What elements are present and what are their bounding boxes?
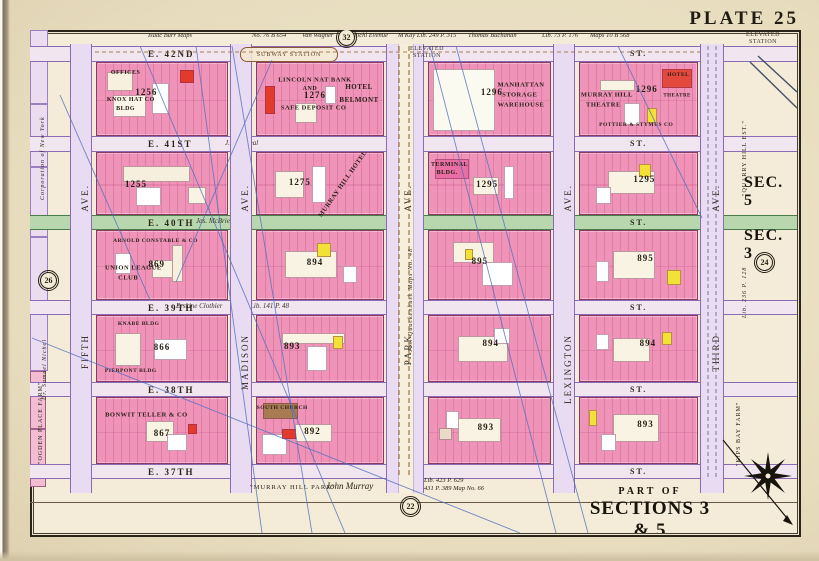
part-of-label: PART OF — [585, 486, 715, 497]
lot-patch — [662, 332, 672, 346]
sections-title: SECTIONS 3 & 5 — [585, 498, 715, 533]
building-label: KNOX HAT CO — [107, 97, 155, 103]
reference-circle-26: 26 — [40, 272, 57, 289]
deed-annotation: No. 76 B 654 — [252, 32, 286, 39]
reference-circle-32: 32 — [338, 30, 355, 46]
block-number: 1295 — [476, 179, 498, 189]
lot-patch — [504, 166, 514, 199]
building-label: BLDG — [116, 106, 135, 112]
reference-circle-22: 22 — [402, 498, 419, 515]
building-label: PIERPONT BLDG — [105, 368, 157, 374]
lot-patch — [188, 424, 197, 434]
atlas-page: PLATE 25 E. 42NDST.E. 41STST.E. 40THST.E… — [0, 0, 819, 561]
map-canvas: E. 42NDST.E. 41STST.E. 40THST.E. 39THST.… — [30, 30, 797, 533]
block-number: 1255 — [125, 179, 147, 189]
street-name-label: E. 42ND — [148, 49, 195, 59]
street-st-label: ST. — [630, 467, 647, 476]
park-avenue-annotation: Jas. Quackenbush Maps No. 48 — [408, 248, 414, 352]
map-block-1255: 1255 — [96, 152, 228, 215]
avenue-ave-label: AVE. — [711, 184, 721, 212]
building-label: UNION LEAGUE — [105, 265, 162, 272]
partial-lot-strip — [30, 237, 48, 304]
building-label: THEATRE — [586, 101, 621, 108]
map-block-866: 866KNABE BLDGPIERPONT BLDG — [96, 315, 228, 382]
map-block-1276: 1276LINCOLN NAT BANKANDSAFE DEPOSIT COHO… — [256, 62, 384, 136]
plate-title: PLATE 25 — [689, 8, 799, 30]
page-edge-shadow — [0, 0, 10, 561]
map-block-895: 895 — [579, 230, 698, 300]
lot-patch — [601, 434, 616, 450]
lot-patch — [136, 187, 161, 206]
left-margin-note: Corporation of New York — [40, 70, 46, 200]
street-st-label: ST. — [630, 385, 647, 394]
avenue-fifth: FIFTHAVE. — [70, 44, 92, 493]
building-label: SAFE DEPOSIT CO — [281, 104, 347, 111]
map-block-1296: 1296MANHATTANSTORAGEWAREHOUSE — [428, 62, 551, 136]
subway-station-bracket: SUBWAY STATION — [240, 47, 338, 62]
building-label: BONWIT TELLER & CO — [105, 411, 188, 418]
map-block-895: 895 — [428, 230, 551, 300]
lot-patch — [439, 428, 452, 440]
lot-patch — [325, 86, 336, 104]
block-number: 867 — [154, 428, 171, 438]
elevated-station-label: ELEVATED STATION — [406, 46, 448, 59]
avenue-park: PARKAVE. — [386, 44, 424, 493]
street-annotation: Lib. 141 P. 48 — [250, 302, 289, 310]
lot-patch — [433, 69, 496, 131]
block-number: 895 — [472, 256, 489, 266]
block-number: 893 — [478, 422, 495, 432]
right-margin-note: Lib. 236 P. 128 — [742, 254, 748, 318]
lot-lines — [97, 153, 227, 214]
map-block-894: 894 — [428, 315, 551, 382]
deed-reference-note: Lib. 423 P. 629431 P. 389 Map No. 66 — [424, 477, 484, 494]
building-label: HOTEL — [345, 83, 372, 91]
reference-circle-24: 24 — [756, 254, 773, 271]
map-block-894: 894 — [579, 315, 698, 382]
block-number: 1295 — [633, 174, 655, 184]
block-number: 1296 — [481, 87, 503, 97]
deed-annotation: Lib. 73 P. 176 — [542, 32, 578, 39]
map-block-893: 893 — [428, 397, 551, 464]
deed-annotation: Van Wagner — [302, 32, 333, 39]
lot-patch — [596, 334, 609, 350]
block-number: 1256 — [135, 87, 157, 97]
lot-patch — [172, 245, 183, 282]
block-number: 895 — [637, 253, 654, 263]
building-label: POTTIER & STYMUS CO — [599, 122, 673, 128]
avenue-ave-label: AVE. — [403, 184, 413, 212]
deed-line: Lib. 423 P. 629 — [424, 477, 484, 485]
lot-patch — [312, 166, 325, 202]
lot-patch — [647, 108, 657, 123]
building-label: LINCOLN NAT BANK — [278, 77, 352, 84]
building-label: ARNOLD CONSTABLE & CO — [113, 238, 198, 244]
map-block-867: 867BONWIT TELLER & CO — [96, 397, 228, 464]
map-block-892: 892SOUTH CHURCH — [256, 397, 384, 464]
lot-patch — [596, 261, 609, 282]
street-name-label: E. 38TH — [148, 385, 195, 395]
street-st-label: ST. — [630, 218, 647, 227]
map-block-893: 893 — [579, 397, 698, 464]
street-st-label: ST. — [630, 139, 647, 148]
building-label: MANHATTAN — [498, 81, 545, 88]
street-name-label: E. 41ST — [148, 139, 193, 149]
lot-patch — [282, 429, 295, 439]
avenue-ave-label: AVE. — [563, 184, 573, 212]
elevated-station-label: ELEVATED STATION — [742, 32, 784, 45]
street-name-label: E. 37TH — [148, 467, 195, 477]
owner-name-note: John Murray — [326, 481, 373, 491]
lot-patch — [446, 411, 459, 429]
lot-patch — [600, 80, 635, 91]
building-label: BELMONT — [339, 96, 378, 104]
avenue-lexington: LEXINGTONAVE. — [553, 44, 575, 493]
building-label: OFFICES — [111, 70, 141, 76]
deed-annotation: Michl Evenue — [352, 32, 388, 39]
block-number: 894 — [307, 257, 324, 267]
lot-patch — [115, 333, 140, 366]
block-number: 1296 — [636, 84, 658, 94]
lot-patch — [667, 270, 682, 284]
right-margin-note: "KIPS BAY FARM" — [736, 394, 742, 466]
murray-hill-park-note: "MURRAY HILL PARK" — [250, 484, 336, 491]
avenue-name-label: THIRD — [711, 334, 721, 372]
map-block-1256: 1256OFFICESKNOX HAT COBLDG — [96, 62, 228, 136]
building-label: CLUB — [118, 274, 138, 281]
lot-patch — [307, 346, 327, 371]
lot-patch — [596, 187, 611, 204]
map-block-1296: 1296MURRAY HILLTHEATREPOTTIER & STYMUS C… — [579, 62, 698, 136]
avenue-third: THIRDAVE. — [700, 44, 724, 493]
building-label: TERMINAL — [431, 162, 468, 168]
deed-annotation: Isaac Burr Maps — [148, 32, 192, 39]
building-label: MURRAY HILL — [581, 91, 633, 98]
avenue-name-label: FIFTH — [80, 334, 90, 369]
map-block-1295: 1295 — [579, 152, 698, 215]
deed-annotation: Thomas Buchanan — [468, 32, 517, 39]
lot-patch — [589, 410, 597, 426]
lot-patch — [180, 70, 194, 83]
block-number: 894 — [482, 338, 499, 348]
building-label: AND — [303, 86, 318, 92]
building-label: WAREHOUSE — [498, 101, 545, 108]
street-st-label: ST. — [630, 49, 647, 58]
building-label: HOTEL — [667, 72, 689, 78]
lot-patch — [265, 86, 276, 114]
lot-patch — [333, 336, 344, 350]
map-block-893: 893 — [256, 315, 384, 382]
block-number: 894 — [640, 338, 657, 348]
street-name-label: E. 40TH — [148, 218, 195, 228]
section-5-label: SEC. 5 — [744, 174, 797, 210]
deed-line: 431 P. 389 Map No. 66 — [424, 485, 484, 493]
block-number: 892 — [304, 426, 321, 436]
avenue-name-label: LEXINGTON — [563, 334, 573, 404]
lot-patch — [317, 243, 330, 257]
building-label: SOUTH CHURCH — [257, 405, 308, 411]
map-block-1275: 1275MURRAY HILL HOTEL — [256, 152, 384, 215]
street-st-label: ST. — [630, 303, 647, 312]
deed-annotation: M'Kay Lib. 249 P. 315 — [398, 32, 456, 39]
map-block-894: 894 — [256, 230, 384, 300]
map-title-block: PART OFSECTIONS 3 & 5Scale 80 Feet to an… — [585, 486, 715, 533]
left-margin-note: "OGDEN PLACE FARM" — [38, 392, 44, 464]
building-label: THEATRE — [663, 94, 691, 99]
block-number: 893 — [284, 341, 301, 351]
avenue-name-label: MADISON — [240, 334, 250, 390]
page-edge-shadow — [0, 551, 819, 561]
avenue-ave-label: AVE. — [80, 184, 90, 212]
street-annotation: Jas. McBrien — [196, 217, 233, 225]
block-number: 866 — [154, 342, 171, 352]
lot-patch — [188, 187, 206, 204]
block-number: 893 — [637, 419, 654, 429]
avenue-ave-label: AVE. — [240, 184, 250, 212]
lot-patch — [343, 266, 358, 283]
building-label: STORAGE — [502, 91, 537, 98]
building-label: KNABE BLDG — [118, 321, 160, 327]
deed-annotation: Maps 10 B 568 — [590, 32, 630, 39]
building-label: BLDG. — [437, 170, 458, 176]
avenue-madison: MADISONAVE. — [230, 44, 252, 493]
map-block-1295: 1295TERMINALBLDG. — [428, 152, 551, 215]
street-annotation: Erskine Clothier — [176, 302, 222, 310]
block-number: 1275 — [289, 177, 311, 187]
map-block-869: 869ARNOLD CONSTABLE & COUNION LEAGUECLUB — [96, 230, 228, 300]
